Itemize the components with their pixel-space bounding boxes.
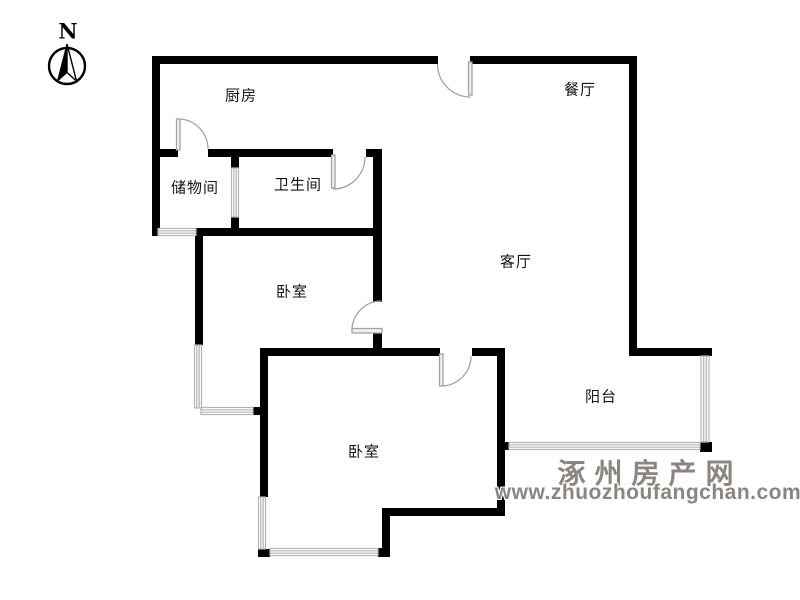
wall-balcony-top [629,348,712,356]
wall-top-right [470,56,637,64]
wall-divider-top [231,149,239,169]
wall-bed1-left [195,228,203,345]
north-compass-icon [49,44,85,84]
room-label-balcony: 阳台 [585,390,617,405]
watermark-site-url: www.zhuozhoufangchan.com [495,481,800,505]
window-balcony-east [701,356,709,442]
wall-balcony-cap [501,442,509,450]
door-entrance [438,62,473,97]
wall-bed2-left [260,348,268,497]
window-bed1-west [195,345,202,408]
wall-kitchen-3 [239,149,333,157]
wall-kitchen-1 [152,149,178,157]
wall-bed2-top-left [260,348,440,356]
room-label-storage: 储物间 [171,181,219,196]
window-bed2-south [270,549,378,556]
compass-north-label: N [58,19,77,44]
floorplan-page: N 厨房 餐厅 储物间 卫生间 卧室 客厅 卧室 阳台 涿州房产网 www.zh… [0,0,800,600]
doors [177,62,473,386]
wall-left [152,56,160,233]
door-bedroom-1 [352,301,382,333]
door-bathroom [332,155,366,189]
window-bed1-south [201,408,253,415]
window-balcony-south [509,443,700,450]
wall-right [629,56,637,356]
room-label-dining: 餐厅 [564,83,596,98]
window-storage-south [158,229,196,236]
floorplan-drawing [0,0,800,600]
room-label-kitchen: 厨房 [225,89,257,104]
wall-balcony-corner [700,442,712,452]
wall-bed2-corner-bl [258,549,270,557]
wall-bed1-right-upper [373,149,382,302]
room-label-living: 客厅 [500,255,532,270]
room-label-bathroom: 卫生间 [274,178,322,193]
door-kitchen-storage [177,119,209,150]
door-bedroom-2 [440,354,472,386]
wall-kitchen-2 [208,149,232,157]
wall-bed2-bottom [382,508,505,516]
wall-top-left [152,56,438,64]
wall-storage-bottom-right [196,228,382,236]
room-label-bedroom-1: 卧室 [276,285,308,300]
window-storage-bathroom [232,168,239,217]
room-label-bedroom-2: 卧室 [348,445,380,460]
window-bed2-west [259,497,266,549]
